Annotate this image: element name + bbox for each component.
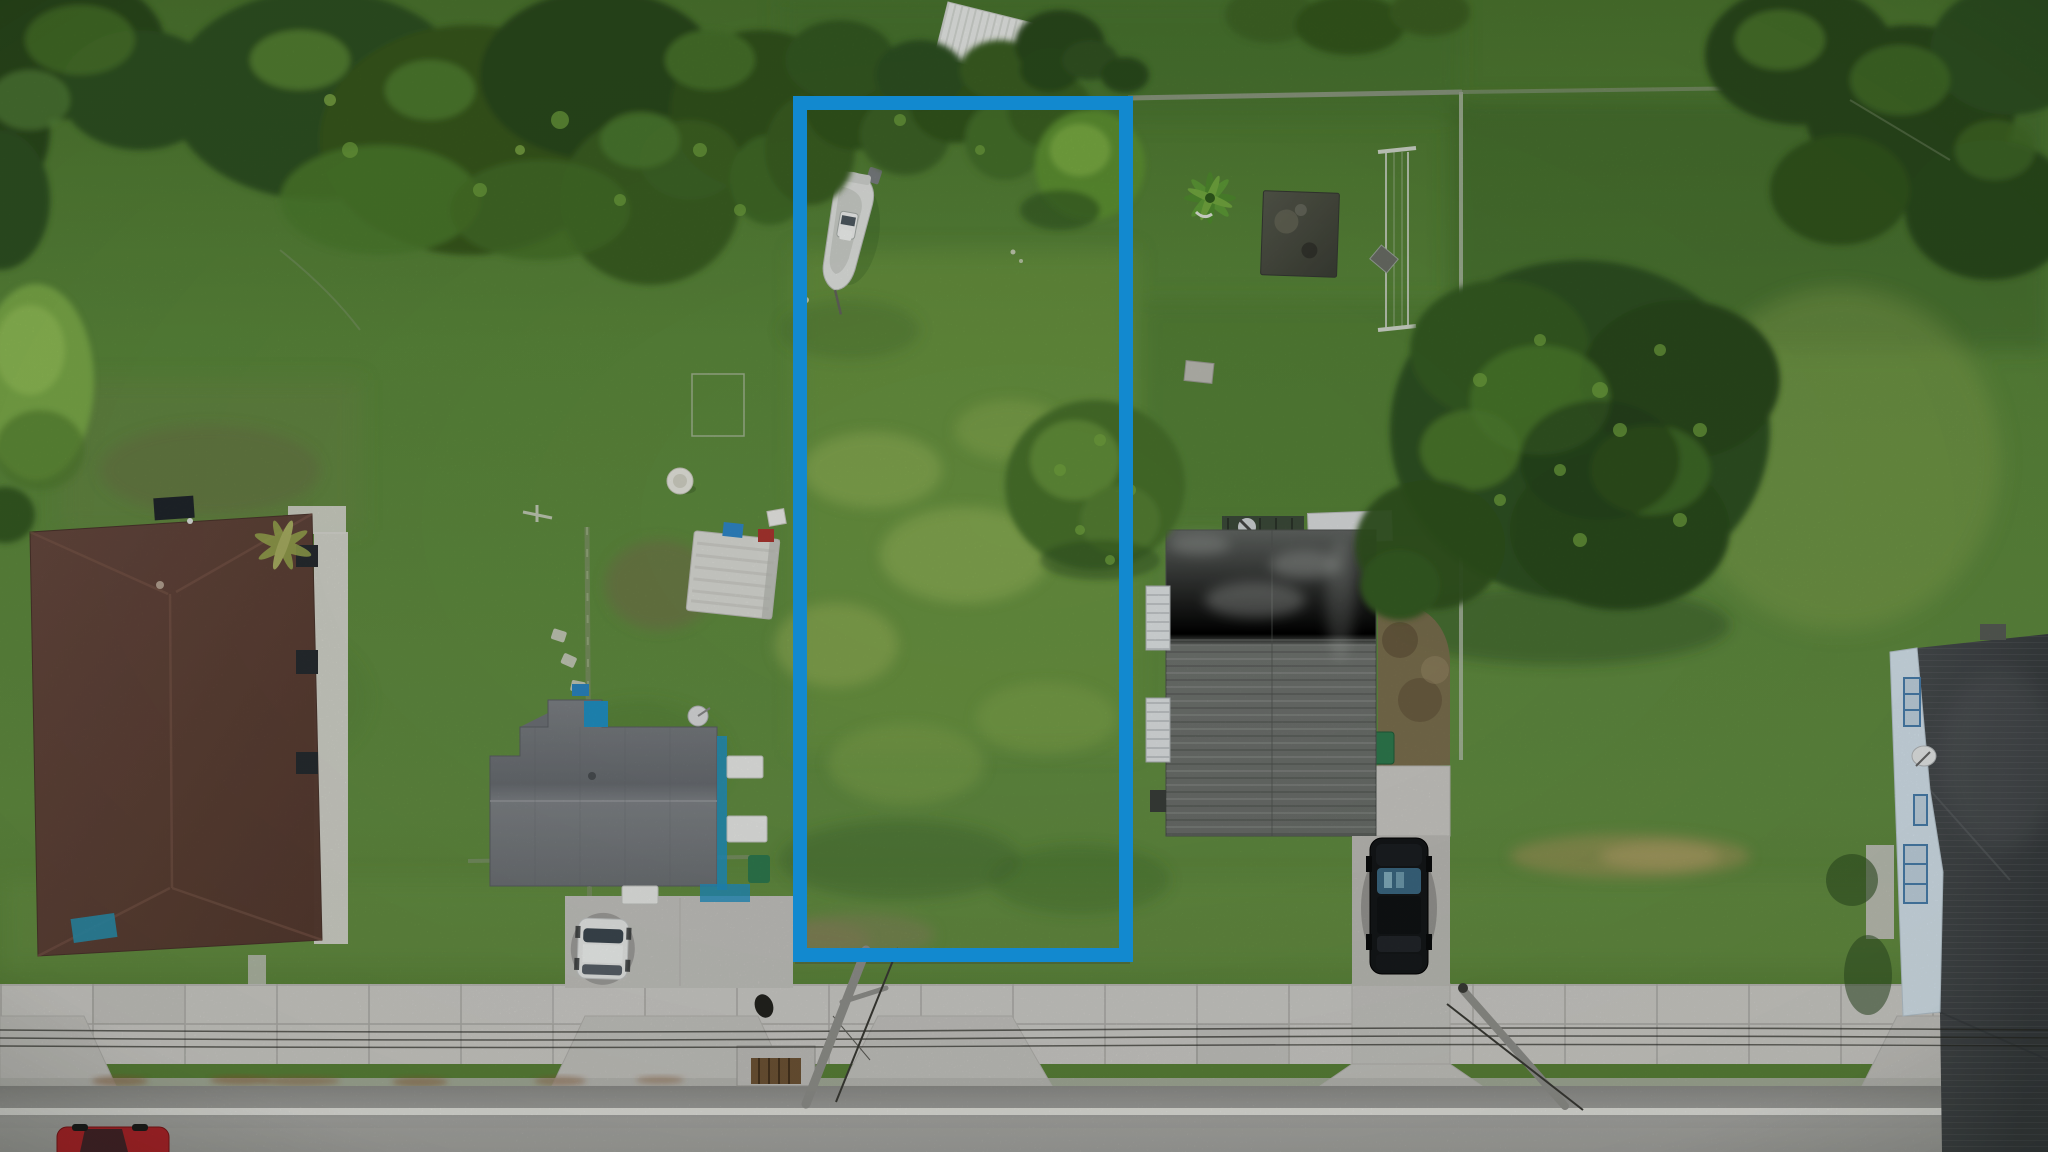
vignette bbox=[0, 0, 2048, 1152]
aerial-photo bbox=[0, 0, 2048, 1152]
